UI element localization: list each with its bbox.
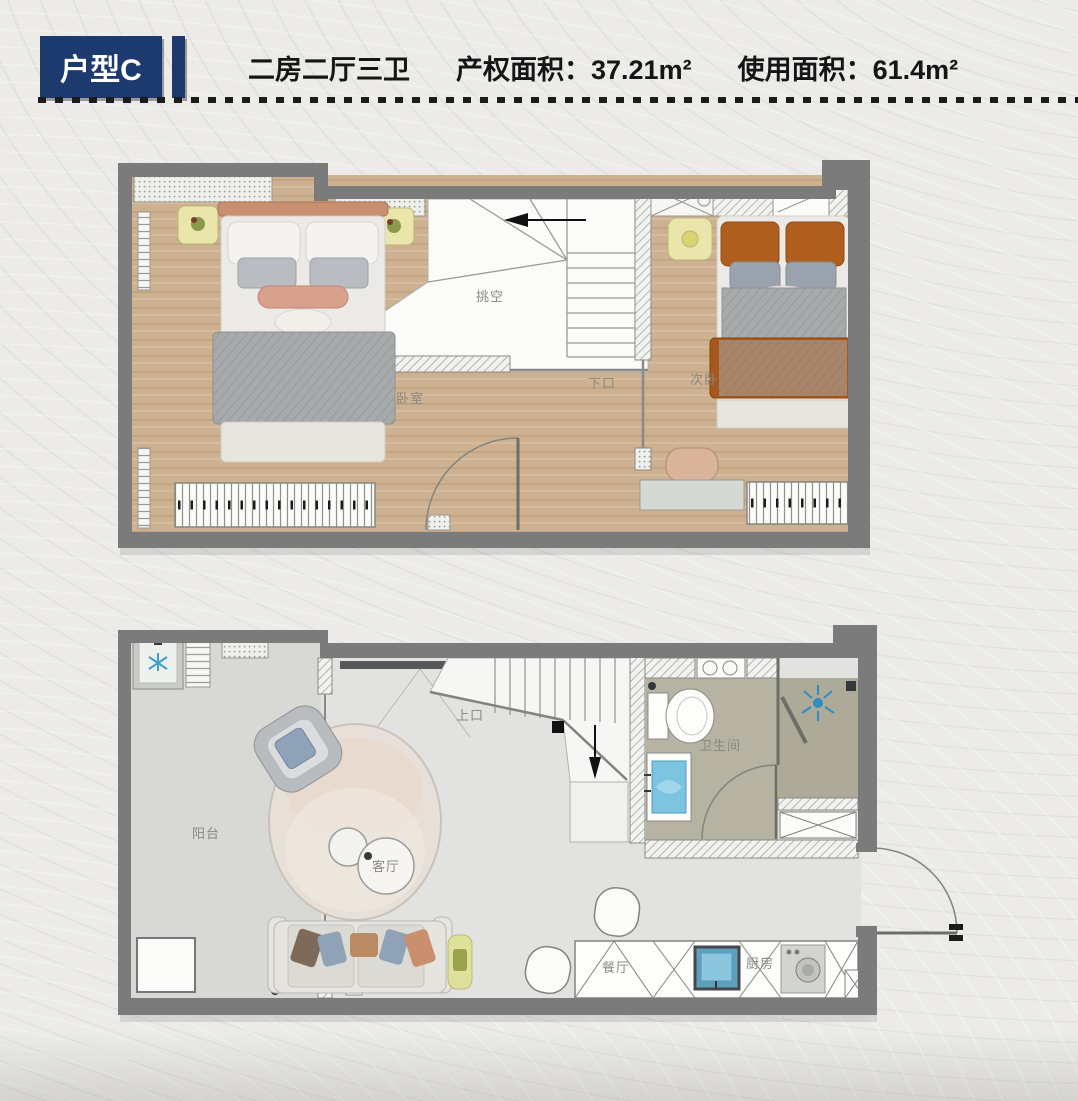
label-kitchen: 厨房 (746, 956, 774, 971)
left-window-lower (138, 448, 150, 528)
label-master-bedroom: 卧室 (396, 391, 424, 406)
label-dining-room: 餐厅 (602, 960, 630, 975)
nightstand-secondary (668, 218, 712, 260)
label-living-room: 客厅 (372, 859, 400, 874)
sofa (268, 917, 452, 993)
property-area-value: 37.21m² (591, 55, 692, 86)
left-window-upper (138, 212, 150, 290)
badge-accent-bar (172, 36, 185, 98)
pillow-orange-right (786, 222, 844, 266)
label-bathroom: 卫生间 (699, 738, 741, 753)
usable-area-label: 使用面积： (738, 48, 873, 87)
entry-door (872, 848, 963, 941)
side-pouf (448, 935, 472, 989)
wardrobe-band-master (175, 483, 375, 527)
label-balcony: 阳台 (192, 826, 220, 841)
layout-summary: 二房二厅三卫 (248, 48, 410, 87)
usable-area-value: 61.4m² (873, 55, 959, 86)
washing-machine (781, 945, 825, 993)
bathroom-sink (644, 753, 691, 821)
pillow-orange-left (721, 222, 779, 266)
property-area: 产权面积：37.21m² (456, 48, 692, 87)
drying-rack (186, 637, 210, 687)
bathroom-top-cabinets (645, 658, 778, 678)
nightstand-left (178, 206, 218, 244)
property-area-label: 产权面积： (456, 48, 591, 87)
balcony-sink (133, 635, 183, 689)
usable-area: 使用面积：61.4m² (738, 48, 959, 87)
upper-floor-plan: 卧室 挑空 下口 次卧 (118, 160, 870, 555)
label-stairs-up: 上口 (456, 708, 484, 723)
label-stairs-down: 下口 (588, 376, 616, 391)
closet-top-left (134, 176, 272, 202)
secondary-bed (710, 216, 856, 428)
stair-post (552, 721, 564, 733)
bathroom-bottom-wall (645, 840, 858, 858)
desk-chair (666, 448, 718, 482)
unit-type-badge: 户型C (40, 36, 162, 98)
wardrobe-band-secondary (747, 482, 848, 524)
master-bed (213, 202, 395, 462)
kitchen-sink (695, 947, 739, 989)
lower-floor-plan: 阳台 客厅 上口 卫生间 餐厅 厨房 (118, 625, 963, 1022)
washer-box (137, 938, 195, 992)
headboard (218, 202, 388, 216)
shower-floor (778, 678, 858, 798)
understair-storage (570, 782, 628, 842)
blanket (213, 332, 395, 424)
floor-plan-canvas: 卧室 挑空 下口 次卧 (0, 100, 1078, 1101)
bathroom-left-wall (630, 645, 645, 843)
divider-wall (635, 188, 651, 360)
label-secondary-bedroom: 次卧 (690, 372, 718, 387)
header-title-row: 二房二厅三卫 产权面积：37.21m² 使用面积：61.4m² (248, 36, 958, 98)
bottom-shade (0, 1031, 1078, 1101)
label-void-space: 挑空 (476, 289, 504, 304)
desk (640, 480, 744, 510)
